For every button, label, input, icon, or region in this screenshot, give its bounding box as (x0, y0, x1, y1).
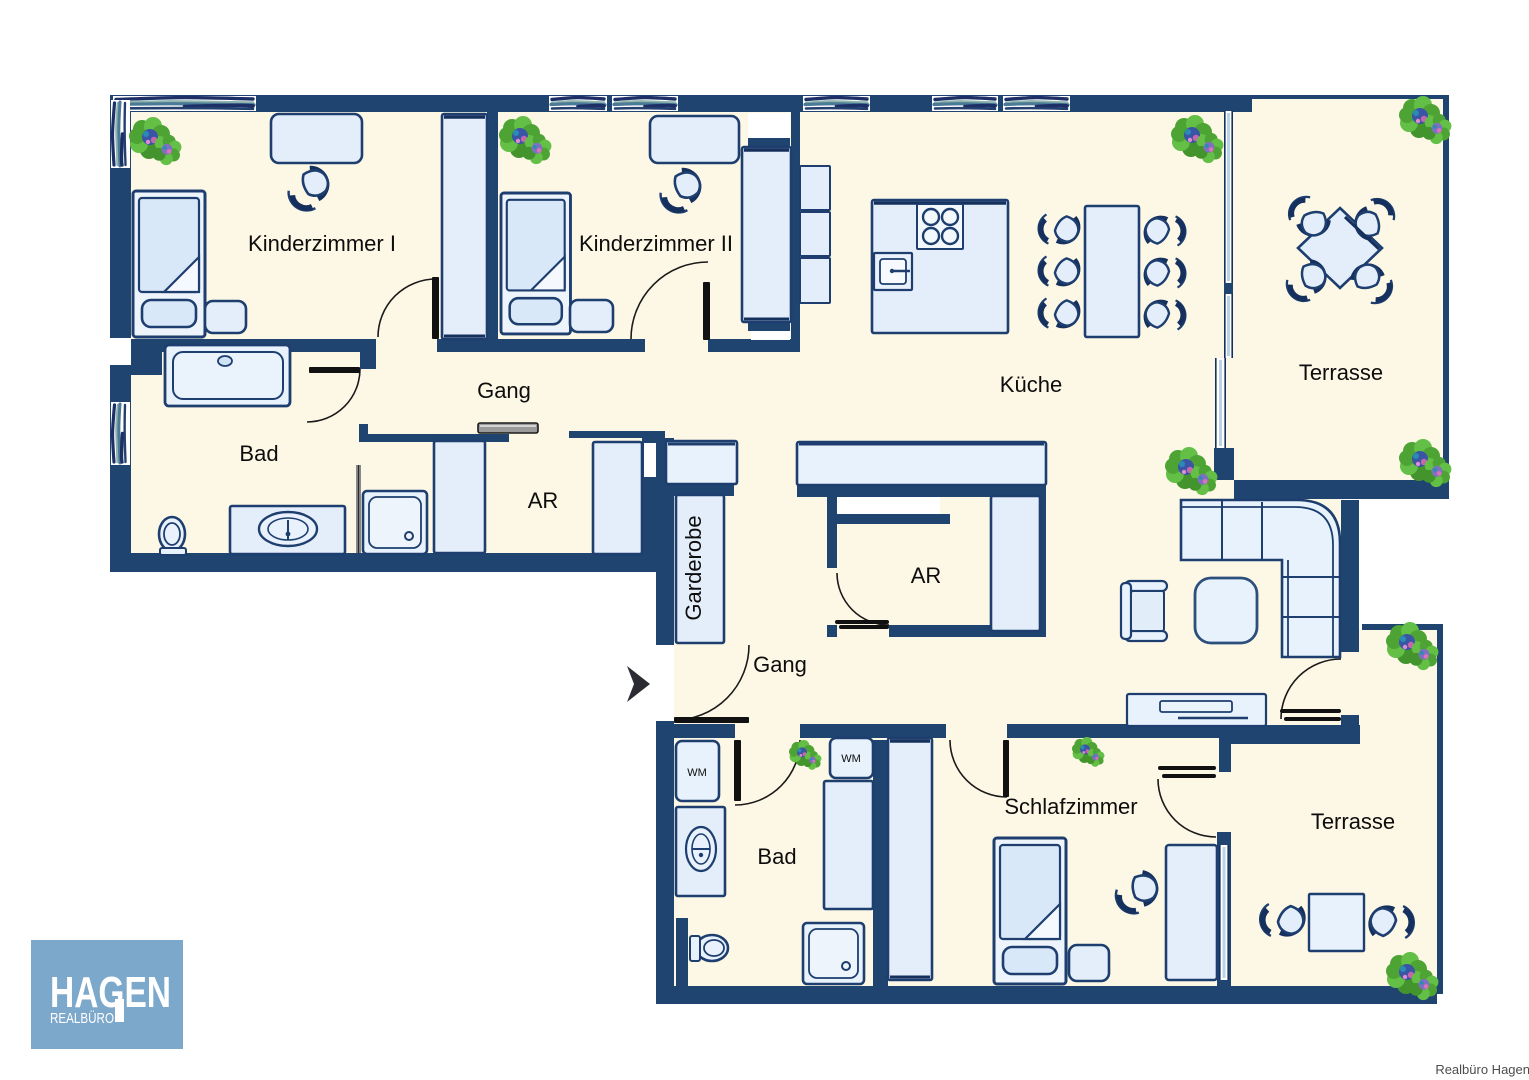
svg-text:Terrasse: Terrasse (1299, 360, 1383, 385)
svg-text:Gang: Gang (753, 652, 807, 677)
svg-text:Schlafzimmer: Schlafzimmer (1004, 794, 1137, 819)
svg-text:WM: WM (687, 767, 707, 779)
svg-text:Bad: Bad (239, 441, 278, 466)
svg-text:Kinderzimmer I: Kinderzimmer I (248, 231, 396, 256)
svg-text:Gang: Gang (477, 378, 531, 403)
svg-text:Garderobe: Garderobe (681, 515, 706, 620)
svg-text:AR: AR (528, 488, 559, 513)
svg-text:Kinderzimmer II: Kinderzimmer II (579, 231, 733, 256)
svg-text:Realbüro Hagen: Realbüro Hagen (1435, 1062, 1529, 1077)
svg-text:AR: AR (911, 563, 942, 588)
svg-text:WM: WM (841, 753, 861, 765)
svg-text:REALBÜRO: REALBÜRO (50, 1009, 114, 1027)
svg-text:Bad: Bad (757, 844, 796, 869)
svg-text:Küche: Küche (1000, 372, 1062, 397)
svg-text:Terrasse: Terrasse (1311, 809, 1395, 834)
